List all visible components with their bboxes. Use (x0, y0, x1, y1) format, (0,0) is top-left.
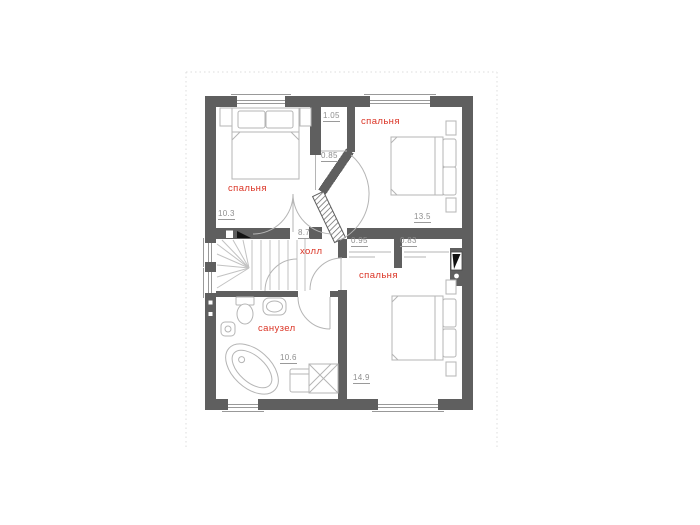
floor-plan-drawing (0, 0, 700, 525)
bathtub-icon (216, 334, 288, 404)
furniture-bedroom-top-right (391, 121, 456, 212)
bathroom-fixtures (216, 297, 338, 404)
staircase (217, 239, 305, 291)
floor-plan-image: спальня 10.3 спальня 13.5 спальня 14.9 х… (0, 0, 700, 525)
toilet-bowl-icon (237, 304, 253, 324)
furniture-bedroom-bottom-right (349, 252, 456, 376)
furniture-bedroom-top-left (220, 108, 311, 179)
